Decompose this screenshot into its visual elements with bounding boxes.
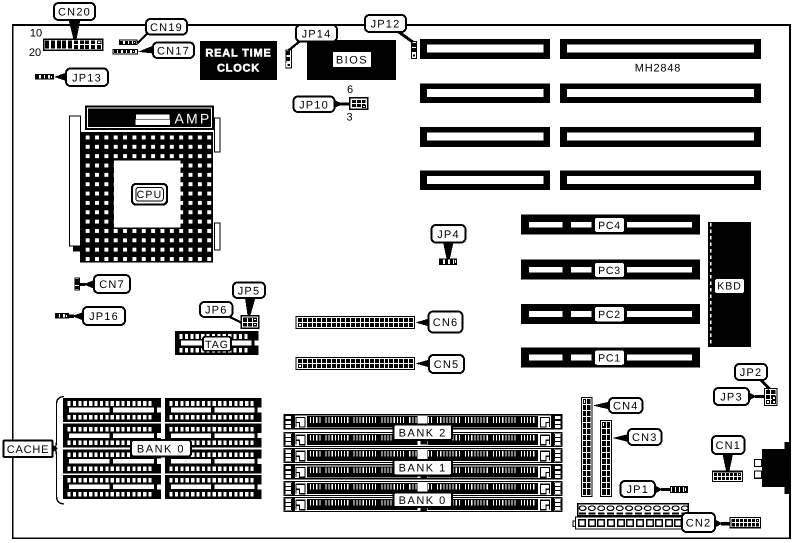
svg-text:PC3: PC3 (598, 265, 621, 277)
svg-text:BIOS: BIOS (336, 55, 368, 67)
svg-text:MH2848: MH2848 (635, 63, 681, 75)
svg-text:JP13: JP13 (72, 72, 102, 84)
svg-text:CN19: CN19 (150, 22, 183, 34)
svg-text:PC4: PC4 (598, 220, 621, 232)
svg-text:CN3: CN3 (632, 432, 658, 444)
svg-text:CLOCK: CLOCK (217, 63, 260, 75)
svg-text:CN1: CN1 (715, 440, 741, 452)
svg-text:BANK 0: BANK 0 (399, 495, 447, 507)
svg-text:3: 3 (346, 112, 352, 124)
svg-text:REAL TIME: REAL TIME (205, 48, 271, 60)
svg-text:CPU: CPU (137, 189, 163, 201)
svg-text:JP12: JP12 (371, 19, 401, 31)
svg-text:20: 20 (29, 47, 41, 59)
svg-text:KBD: KBD (717, 281, 742, 293)
svg-text:CN17: CN17 (157, 45, 190, 57)
svg-text:PC1: PC1 (598, 353, 621, 365)
svg-text:CN4: CN4 (613, 401, 639, 413)
svg-text:CN5: CN5 (434, 359, 460, 371)
svg-text:JP5: JP5 (238, 285, 261, 297)
svg-text:BANK 2: BANK 2 (399, 427, 447, 439)
svg-text:CACHE: CACHE (7, 444, 50, 456)
svg-text:JP4: JP4 (437, 229, 460, 241)
svg-text:CN6: CN6 (433, 317, 459, 329)
svg-text:JP6: JP6 (205, 305, 228, 317)
svg-text:JP2: JP2 (740, 367, 763, 379)
svg-text:JP10: JP10 (299, 99, 329, 111)
svg-text:CN20: CN20 (58, 7, 91, 19)
svg-text:CN7: CN7 (99, 279, 125, 291)
svg-text:PC2: PC2 (598, 309, 621, 321)
svg-text:JP1: JP1 (626, 484, 649, 496)
svg-text:JP14: JP14 (302, 28, 332, 40)
svg-text:BANK 1: BANK 1 (399, 463, 447, 475)
svg-text:TAG: TAG (205, 339, 229, 351)
svg-text:JP3: JP3 (720, 392, 743, 404)
svg-text:JP16: JP16 (89, 311, 119, 323)
svg-text:CN2: CN2 (686, 518, 712, 530)
svg-text:BANK 0: BANK 0 (137, 443, 185, 455)
svg-text:10: 10 (30, 28, 42, 40)
svg-text:6: 6 (347, 84, 353, 96)
svg-text:AMP: AMP (175, 111, 212, 127)
